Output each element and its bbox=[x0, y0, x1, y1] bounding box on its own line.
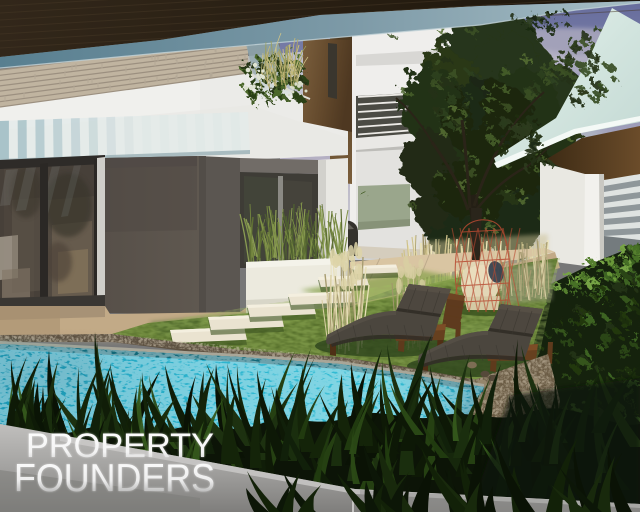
svg-text:FOUNDERS: FOUNDERS bbox=[14, 457, 215, 500]
